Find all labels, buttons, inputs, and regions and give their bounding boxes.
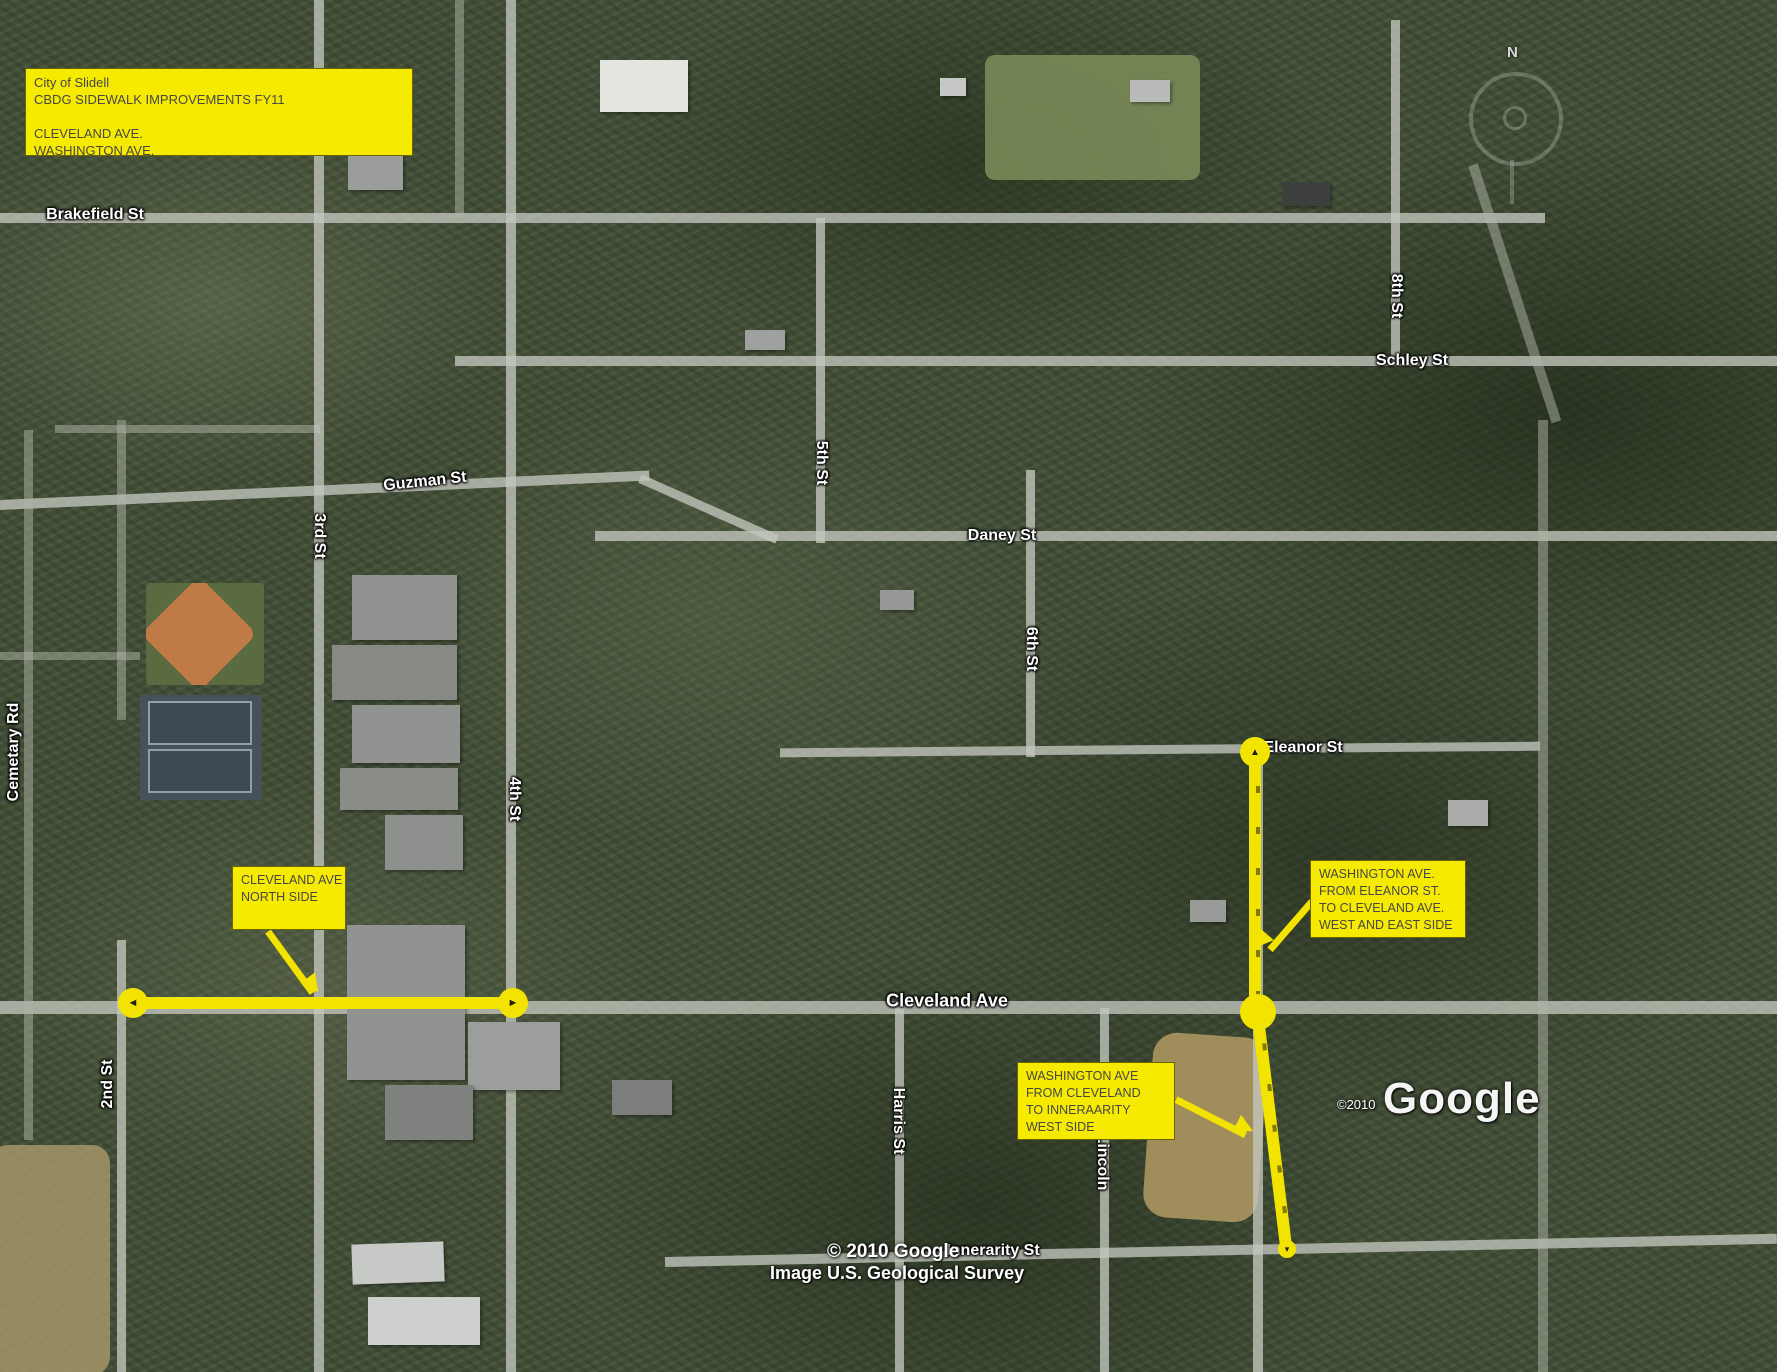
route-endpoint-eleanor: ▲ bbox=[1240, 737, 1270, 767]
route-endpoint-east: ► bbox=[498, 988, 528, 1018]
tennis-courts bbox=[140, 695, 262, 800]
road bbox=[0, 471, 650, 510]
arrow-down-icon: ▾ bbox=[1285, 1244, 1290, 1255]
street-label-daney-st: Daney St bbox=[968, 527, 1036, 545]
street-label-harris-st: Harris St bbox=[889, 1088, 907, 1155]
title-line: CLEVELAND AVE. bbox=[34, 125, 404, 142]
street-label-5th-st: 5th St bbox=[812, 441, 830, 485]
building bbox=[340, 768, 458, 810]
callout-washington-eleanor-to-cleveland: WASHINGTON AVE. FROM ELEANOR ST. TO CLEV… bbox=[1310, 860, 1466, 938]
building bbox=[940, 78, 966, 96]
building bbox=[745, 330, 785, 350]
road bbox=[780, 742, 1540, 758]
road bbox=[314, 0, 324, 1372]
building bbox=[1282, 182, 1330, 206]
satellite-map: Brakefield St Schley St Guzman St Daney … bbox=[0, 0, 1777, 1372]
road bbox=[55, 425, 320, 433]
callout-cleveland-ave-north-side: CLEVELAND AVE NORTH SIDE bbox=[232, 866, 346, 930]
street-label-4th-st: 4th St bbox=[505, 777, 523, 821]
cleveland-ave-highlight-line bbox=[133, 997, 513, 1009]
callout-washington-cleveland-to-innerarity: WASHINGTON AVE FROM CLEVELAND TO INNERAA… bbox=[1017, 1062, 1175, 1140]
street-label-guzman-st: Guzman St bbox=[383, 469, 468, 496]
road bbox=[1026, 470, 1035, 757]
title-line: City of Slidell bbox=[34, 74, 404, 91]
road bbox=[455, 0, 464, 218]
baseball-diamond bbox=[146, 583, 257, 685]
callout-line: CLEVELAND AVE bbox=[241, 872, 337, 889]
callout-line: TO CLEVELAND AVE. bbox=[1319, 900, 1457, 917]
building bbox=[468, 1022, 560, 1090]
arrow-up-icon: ▲ bbox=[1250, 747, 1260, 758]
road bbox=[1538, 420, 1548, 1372]
leader-line bbox=[1267, 899, 1314, 952]
building bbox=[332, 645, 457, 700]
road bbox=[117, 420, 126, 720]
street-label-cleveland-ave: Cleveland Ave bbox=[886, 991, 1008, 1012]
callout-line: TO INNERAARITY bbox=[1026, 1102, 1166, 1119]
title-line: WASHINGTON AVE. bbox=[34, 142, 404, 159]
street-label-2nd-st: 2nd St bbox=[99, 1060, 117, 1109]
bare-ground bbox=[0, 1145, 110, 1372]
baseball-field bbox=[146, 583, 264, 685]
callout-line: WEST AND EAST SIDE bbox=[1319, 917, 1457, 934]
building bbox=[612, 1080, 672, 1115]
arrow-right-icon: ► bbox=[508, 997, 519, 1009]
street-label-6th-st: 6th St bbox=[1022, 627, 1040, 671]
road bbox=[506, 0, 516, 1372]
building bbox=[600, 60, 688, 112]
building bbox=[352, 705, 460, 763]
street-label-brakefield-st: Brakefield St bbox=[46, 206, 144, 224]
building bbox=[351, 1241, 444, 1284]
street-label-schley-st: Schley St bbox=[1376, 352, 1448, 370]
compass-north-label: N bbox=[1507, 44, 1518, 61]
road bbox=[0, 213, 1545, 223]
compass-control: N bbox=[1455, 44, 1570, 204]
callout-line: FROM ELEANOR ST. bbox=[1319, 883, 1457, 900]
google-logo: Google bbox=[1383, 1074, 1541, 1124]
building bbox=[352, 575, 457, 640]
arrow-left-icon: ◄ bbox=[128, 997, 139, 1009]
copyright-corner: ©2010 bbox=[1337, 1097, 1376, 1112]
compass-inner-ring bbox=[1503, 106, 1527, 130]
project-title-box: City of Slidell CBDG SIDEWALK IMPROVEMEN… bbox=[25, 68, 413, 156]
copyright-survey: Image U.S. Geological Survey bbox=[770, 1263, 1024, 1284]
building bbox=[880, 590, 914, 610]
route-endpoint-innerarity: ▾ bbox=[1278, 1240, 1296, 1258]
building bbox=[368, 1297, 480, 1345]
tennis-court bbox=[148, 749, 252, 793]
title-line bbox=[34, 108, 404, 125]
callout-line: NORTH SIDE bbox=[241, 889, 337, 906]
title-line: CBDG SIDEWALK IMPROVEMENTS FY11 bbox=[34, 91, 404, 108]
tennis-court bbox=[148, 701, 252, 745]
open-field bbox=[985, 55, 1200, 180]
road bbox=[595, 531, 1777, 541]
callout-line: WEST SIDE bbox=[1026, 1119, 1166, 1136]
road bbox=[895, 1008, 904, 1372]
building bbox=[1448, 800, 1488, 826]
route-junction-cleveland-washington bbox=[1240, 994, 1276, 1030]
street-label-eleanor-st: Eleanor St bbox=[1263, 739, 1342, 757]
road bbox=[455, 356, 1777, 366]
callout-line: WASHINGTON AVE. bbox=[1319, 866, 1457, 883]
callout-line: FROM CLEVELAND bbox=[1026, 1085, 1166, 1102]
building bbox=[385, 1085, 473, 1140]
building bbox=[1130, 80, 1170, 102]
washington-ave-highlight-upper bbox=[1249, 752, 1261, 1014]
compass-stem bbox=[1510, 160, 1514, 204]
road bbox=[816, 218, 825, 543]
street-label-cemetary-rd: Cemetary Rd bbox=[5, 703, 23, 802]
street-label-lincoln: Lincoln bbox=[1093, 1134, 1111, 1191]
callout-line: WASHINGTON AVE bbox=[1026, 1068, 1166, 1085]
copyright-center: © 2010 Google bbox=[827, 1241, 959, 1263]
street-label-3rd-st: 3rd St bbox=[310, 513, 328, 558]
street-label-8th-st: 8th St bbox=[1387, 274, 1405, 318]
building bbox=[1190, 900, 1226, 922]
road bbox=[24, 430, 33, 1140]
street-label-innerarity-st: Innerarity St bbox=[946, 1242, 1039, 1260]
route-endpoint-west: ◄ bbox=[118, 988, 148, 1018]
building bbox=[385, 815, 463, 870]
